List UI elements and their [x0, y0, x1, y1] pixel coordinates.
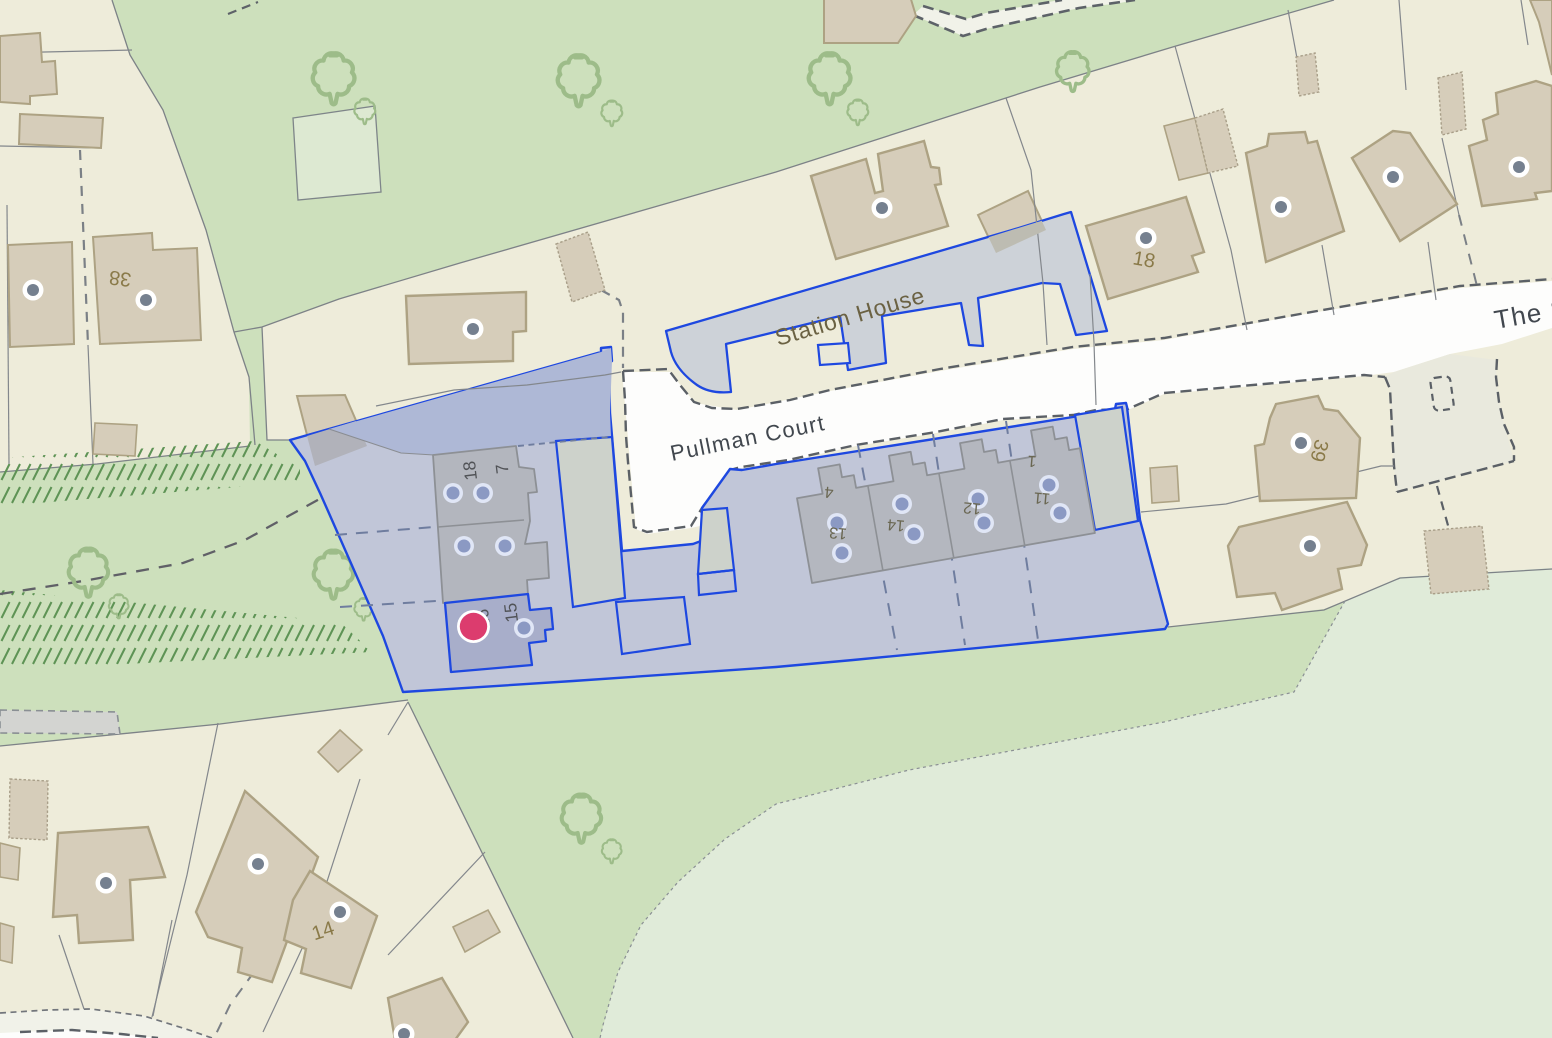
svg-text:4: 4 — [824, 483, 834, 501]
svg-text:14: 14 — [886, 515, 905, 533]
svg-text:18: 18 — [1131, 247, 1157, 273]
svg-text:13: 13 — [828, 523, 847, 541]
svg-text:38: 38 — [108, 266, 133, 291]
svg-text:12: 12 — [962, 498, 981, 516]
svg-text:11: 11 — [1033, 488, 1051, 506]
svg-text:18: 18 — [459, 460, 481, 482]
svg-text:1: 1 — [1027, 452, 1037, 470]
svg-text:15: 15 — [500, 602, 522, 624]
